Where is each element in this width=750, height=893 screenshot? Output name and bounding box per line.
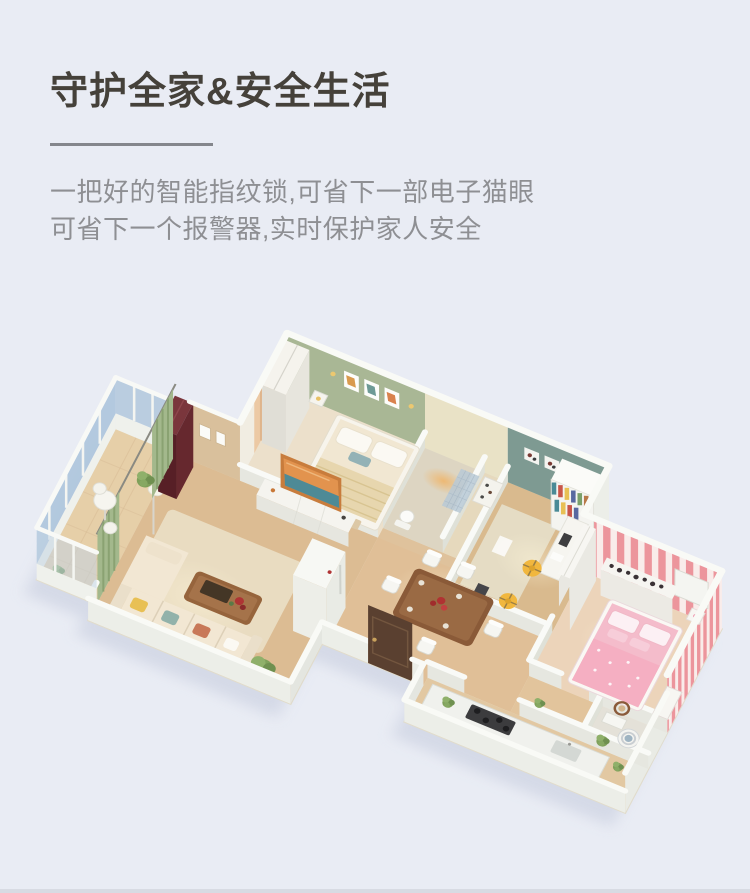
marketing-section: 守护全家&安全生活 一把好的智能指纹锁,可省下一部电子猫眼 可省下一个报警器,实… bbox=[0, 0, 750, 893]
page-title: 守护全家&安全生活 bbox=[50, 60, 710, 115]
description-line-1: 一把好的智能指纹锁,可省下一部电子猫眼 bbox=[50, 172, 710, 209]
title-divider bbox=[50, 143, 213, 146]
bottom-edge-line bbox=[0, 889, 750, 893]
floorplan-render bbox=[0, 250, 750, 870]
description-line-2: 可省下一个报警器,实时保护家人安全 bbox=[50, 209, 710, 246]
